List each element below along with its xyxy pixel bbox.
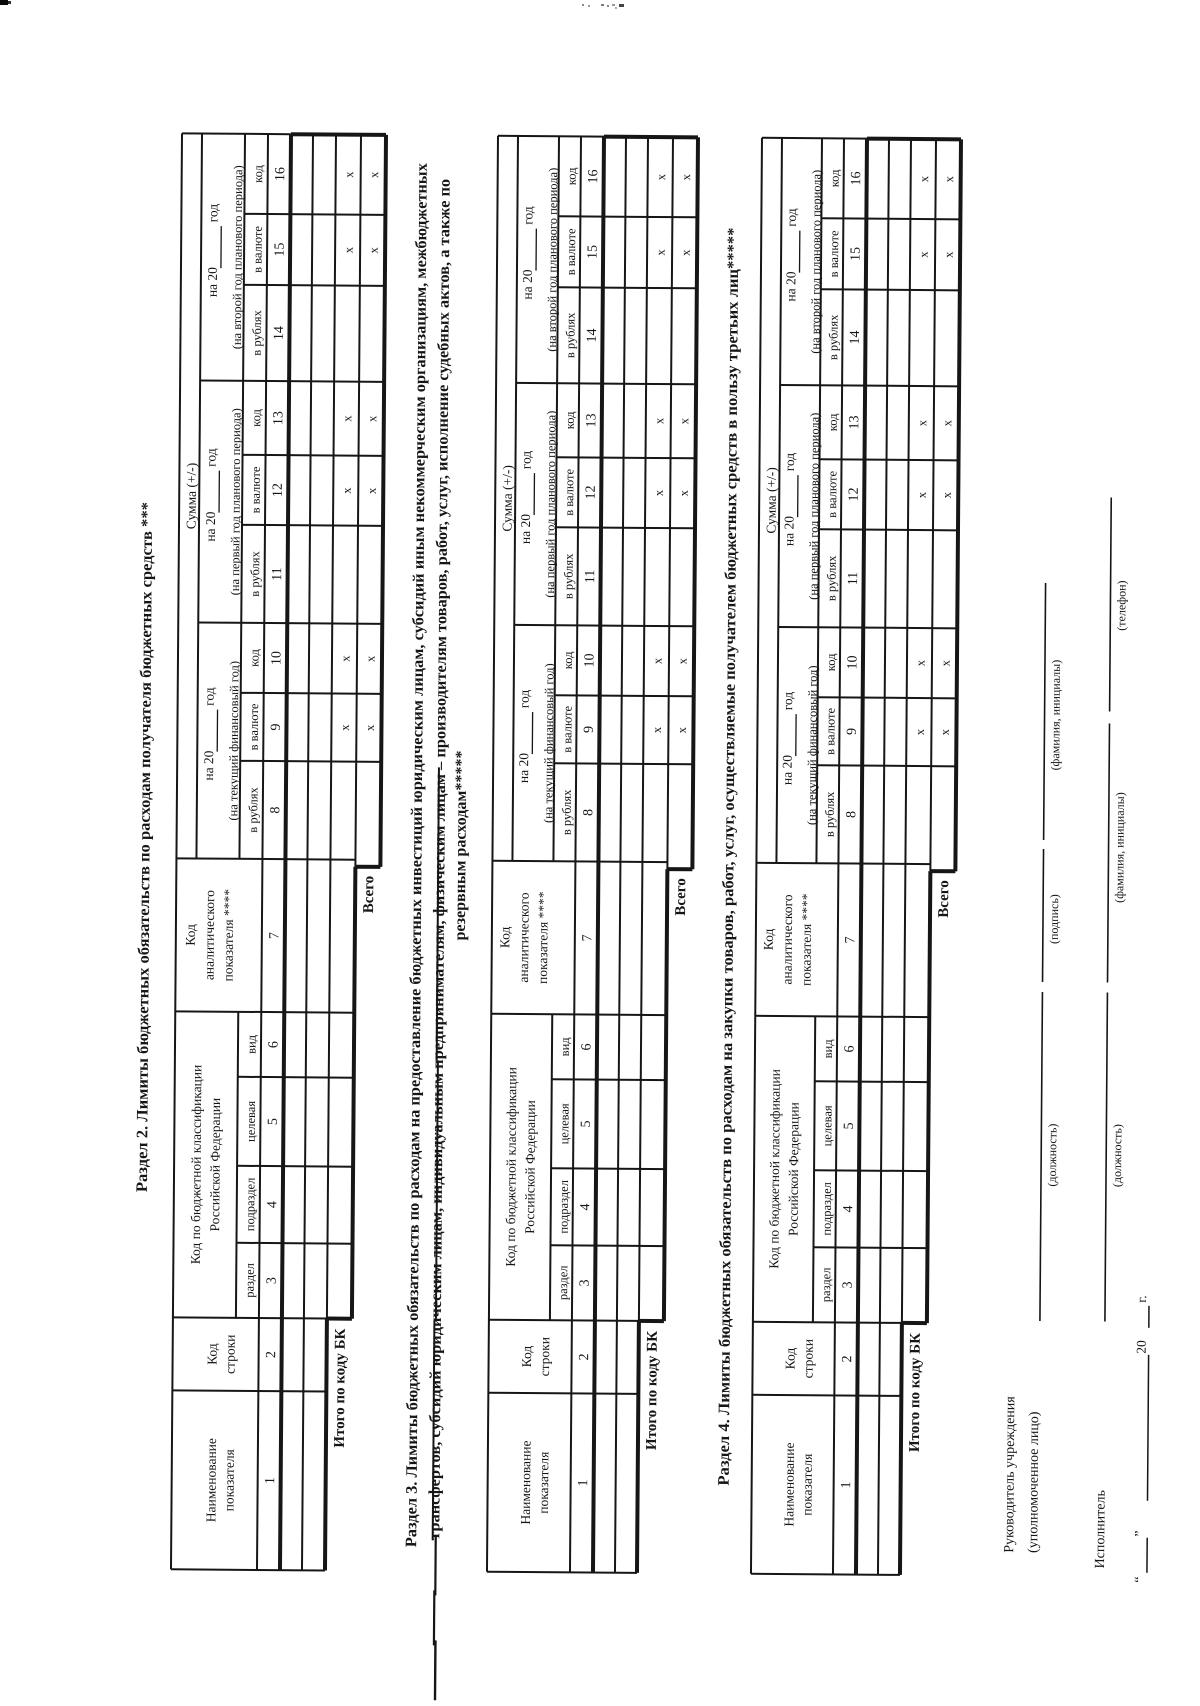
svg-text:х: х	[938, 728, 952, 735]
svg-text:х: х	[915, 419, 929, 426]
svg-text:подраздел: подраздел	[557, 1180, 571, 1234]
svg-text:2: 2	[264, 1351, 279, 1358]
svg-text:13: 13	[584, 413, 599, 427]
svg-text:год: год	[517, 690, 532, 709]
svg-text:х: х	[338, 655, 352, 662]
svg-text:8: 8	[844, 811, 859, 818]
svg-text:Всего: Всего	[936, 880, 952, 918]
svg-text:15: 15	[586, 245, 601, 259]
svg-text:1: 1	[576, 1479, 591, 1486]
svg-text:Код: Код	[519, 1346, 534, 1368]
svg-text:показателя ****: показателя ****	[221, 889, 237, 982]
svg-text:целевая: целевая	[557, 1103, 571, 1144]
svg-text:х: х	[365, 487, 379, 494]
svg-text:(на второй год планового перио: (на второй год планового периода)	[230, 165, 245, 349]
svg-text:5: 5	[266, 1118, 281, 1125]
svg-text:14: 14	[848, 330, 863, 344]
svg-text:на 20: на 20	[201, 750, 216, 780]
svg-text:строки: строки	[222, 1335, 237, 1374]
svg-text:х: х	[917, 251, 931, 258]
svg-text:код: код	[565, 167, 579, 185]
svg-text:(на текущий финансовый год): (на текущий финансовый год)	[805, 665, 820, 825]
svg-text:Итого по коду БК: Итого по коду БК	[332, 1328, 349, 1447]
svg-text:х: х	[367, 171, 381, 178]
svg-text:7: 7	[843, 936, 858, 943]
svg-text:Итого по коду БК: Итого по коду БК	[644, 1331, 661, 1450]
svg-text:Код: Код	[783, 1348, 798, 1370]
svg-text:15: 15	[849, 247, 864, 261]
svg-text:х: х	[342, 246, 356, 253]
svg-text:показателя: показателя	[221, 1449, 236, 1511]
svg-text:х: х	[679, 173, 693, 180]
svg-text:5: 5	[579, 1120, 594, 1127]
svg-text:х: х	[340, 487, 354, 494]
svg-text:вид: вид	[821, 1039, 835, 1059]
svg-text:(на первый год планового перио: (на первый год планового периода)	[228, 408, 243, 595]
svg-text:на 20: на 20	[516, 753, 531, 783]
svg-text:год: год	[203, 448, 218, 467]
svg-text:код: код	[249, 408, 263, 426]
svg-text:(на первый год планового перио: (на первый год планового периода)	[806, 413, 821, 600]
svg-text:Раздел 2. Лимиты бюджетных обя: Раздел 2. Лимиты бюджетных обязательств …	[134, 502, 156, 1192]
svg-text:4: 4	[841, 1205, 856, 1212]
svg-text:строки: строки	[537, 1337, 552, 1376]
svg-text:Российской Федерации: Российской Федерации	[522, 1100, 538, 1234]
svg-text:Наименование: Наименование	[518, 1440, 534, 1524]
svg-text:х: х	[938, 659, 952, 666]
svg-text:Сумма (+/-): Сумма (+/-)	[183, 463, 199, 530]
svg-text:в валюте: в валюте	[823, 707, 837, 754]
svg-text:Раздел 3. Лимиты бюджетных обя: Раздел 3. Лимиты бюджетных обязательств …	[403, 163, 431, 1547]
svg-text:Наименование: Наименование	[781, 1442, 797, 1526]
svg-text:аналитического: аналитического	[779, 894, 795, 984]
svg-text:целевая: целевая	[820, 1105, 834, 1146]
svg-text:в валюте: в валюте	[564, 228, 578, 275]
svg-text:х: х	[652, 489, 666, 496]
svg-text:в рублях: в рублях	[824, 555, 838, 601]
svg-text:целевая: целевая	[244, 1101, 258, 1142]
svg-text:х: х	[677, 489, 691, 496]
svg-text:х: х	[677, 417, 691, 424]
svg-text:(уполномоченное лицо): (уполномоченное лицо)	[1026, 1411, 1042, 1553]
svg-text:10: 10	[582, 653, 597, 667]
svg-text:(фамилия, инициалы): (фамилия, инициалы)	[1112, 792, 1127, 903]
svg-text:год: год	[202, 687, 217, 706]
svg-text:х: х	[367, 246, 381, 253]
svg-text:7: 7	[580, 934, 595, 941]
svg-text:код: код	[563, 411, 577, 429]
svg-text:на 20: на 20	[205, 267, 220, 297]
svg-text:13: 13	[847, 415, 862, 429]
svg-text:код: код	[561, 651, 575, 669]
svg-text:9: 9	[269, 724, 284, 731]
svg-text:Код: Код	[205, 1343, 220, 1365]
svg-text:(на текущий финансовый год): (на текущий финансовый год)	[226, 661, 241, 821]
svg-text:подраздел: подраздел	[243, 1178, 257, 1232]
svg-text:в валюте: в валюте	[825, 470, 839, 517]
svg-text:х: х	[650, 657, 664, 664]
svg-text:в рублях: в рублях	[561, 553, 575, 599]
svg-text:(должность): (должность)	[1110, 1124, 1124, 1187]
svg-text:код: код	[247, 648, 261, 666]
svg-text:Итого по коду БК: Итого по коду БК	[907, 1333, 924, 1452]
svg-text:16: 16	[586, 169, 601, 183]
svg-text:х: х	[942, 175, 956, 182]
svg-text:Всего: Всего	[673, 878, 689, 916]
svg-text:9: 9	[582, 726, 597, 733]
svg-text:на 20: на 20	[203, 511, 218, 541]
svg-text:(на второй год планового перио: (на второй год планового периода)	[808, 170, 823, 354]
svg-text:11: 11	[270, 567, 285, 581]
svg-text:”: ”	[1133, 1530, 1148, 1536]
svg-text:в валюте: в валюте	[827, 230, 841, 277]
svg-text:в валюте: в валюте	[560, 705, 574, 752]
svg-text:16: 16	[849, 171, 864, 185]
svg-text:3: 3	[841, 1281, 856, 1288]
svg-text:10: 10	[269, 651, 284, 665]
svg-text:3: 3	[265, 1277, 280, 1284]
svg-text:х: х	[915, 491, 929, 498]
svg-text:в рублях: в рублях	[823, 791, 837, 837]
svg-text:раздел: раздел	[243, 1263, 257, 1298]
svg-text:год: год	[205, 204, 220, 223]
svg-text:х: х	[942, 251, 956, 258]
svg-text:Код по бюджетной классификации: Код по бюджетной классификации	[188, 1065, 205, 1265]
svg-text:Исполнитель: Исполнитель	[1093, 1490, 1109, 1568]
svg-text:Сумма (+/-): Сумма (+/-)	[499, 465, 515, 532]
svg-text:в рублях: в рублях	[250, 309, 264, 355]
svg-text:х: х	[654, 249, 668, 256]
svg-text:2: 2	[840, 1355, 855, 1362]
svg-text:х: х	[342, 171, 356, 178]
svg-text:Наименование: Наименование	[203, 1438, 219, 1522]
svg-text:Код: Код	[497, 926, 512, 948]
svg-text:Код: Код	[761, 928, 776, 950]
svg-text:показателя: показателя	[799, 1454, 814, 1516]
svg-text:4: 4	[265, 1201, 280, 1208]
svg-text:вид: вид	[244, 1034, 258, 1054]
svg-text:х: х	[679, 249, 693, 256]
svg-text:на 20: на 20	[781, 516, 796, 546]
svg-text:вид: вид	[558, 1037, 572, 1057]
svg-text:код: код	[828, 169, 842, 187]
svg-text:5: 5	[842, 1122, 857, 1129]
svg-text:год: год	[782, 453, 797, 472]
svg-text:показателя: показателя	[536, 1452, 551, 1514]
svg-text:(подпись): (подпись)	[1047, 894, 1061, 944]
svg-text:х: х	[675, 726, 689, 733]
svg-text:х: х	[917, 175, 931, 182]
svg-text:год: год	[780, 692, 795, 711]
svg-text:Код по бюджетной классификации: Код по бюджетной классификации	[766, 1069, 783, 1269]
svg-text:14: 14	[272, 326, 287, 340]
svg-text:в валюте: в валюте	[249, 466, 263, 513]
svg-text:3: 3	[578, 1279, 593, 1286]
svg-text:код: код	[251, 164, 265, 182]
svg-text:16: 16	[273, 167, 288, 181]
svg-text:раздел: раздел	[556, 1265, 570, 1300]
svg-text:Российской Федерации: Российской Федерации	[207, 1098, 223, 1232]
svg-text:х: х	[675, 657, 689, 664]
svg-text:год: год	[520, 206, 535, 225]
svg-text:4: 4	[578, 1203, 593, 1210]
svg-text:х: х	[913, 659, 927, 666]
svg-text:в рублях: в рублях	[826, 314, 840, 360]
svg-text:г.: г.	[1134, 1295, 1149, 1303]
svg-text:Всего: Всего	[361, 876, 377, 914]
svg-text:(на второй год планового перио: (на второй год планового периода)	[545, 168, 560, 352]
svg-text:Код: Код	[183, 924, 198, 946]
svg-text:9: 9	[845, 728, 860, 735]
svg-text:(на текущий финансовый год): (на текущий финансовый год)	[541, 663, 556, 823]
svg-text:на 20: на 20	[518, 514, 533, 544]
svg-text:в валюте: в валюте	[250, 226, 264, 273]
svg-text:подраздел: подраздел	[820, 1182, 834, 1236]
svg-text:“: “	[1133, 1576, 1148, 1582]
svg-text:на 20: на 20	[780, 755, 795, 785]
svg-text:в рублях: в рублях	[560, 789, 574, 835]
svg-text:Руководитель учреждения: Руководитель учреждения	[1002, 1396, 1018, 1553]
svg-text:х: х	[913, 728, 927, 735]
svg-text:2: 2	[577, 1353, 592, 1360]
svg-text:в рублях: в рублях	[246, 786, 260, 832]
svg-text:х: х	[654, 173, 668, 180]
svg-text:1: 1	[263, 1477, 278, 1484]
svg-text:Сумма (+/-): Сумма (+/-)	[763, 467, 779, 534]
svg-text:в валюте: в валюте	[562, 468, 576, 515]
svg-text:12: 12	[584, 485, 599, 499]
svg-text:резервным расходам*****: резервным расходам*****	[452, 750, 470, 940]
svg-text:8: 8	[268, 807, 283, 814]
svg-text:8: 8	[581, 809, 596, 816]
svg-text:год: год	[518, 451, 533, 470]
svg-text:х: х	[363, 655, 377, 662]
svg-text:на 20: на 20	[783, 271, 798, 301]
svg-text:Раздел 4. Лимиты бюджетных обя: Раздел 4. Лимиты бюджетных обязательств …	[716, 228, 743, 1486]
svg-text:аналитического: аналитического	[516, 892, 532, 982]
svg-text:(телефон): (телефон)	[1114, 580, 1128, 630]
svg-text:в валюте: в валюте	[247, 703, 261, 750]
svg-text:х: х	[940, 491, 954, 498]
svg-text:6: 6	[842, 1045, 857, 1052]
svg-text:строки: строки	[800, 1339, 815, 1378]
svg-text:показателя ****: показателя ****	[798, 893, 814, 986]
svg-text:раздел: раздел	[819, 1267, 833, 1302]
svg-text:х: х	[650, 726, 664, 733]
svg-text:код: код	[824, 653, 838, 671]
svg-text:12: 12	[271, 483, 286, 497]
svg-text:трансфертов, субсидий юридичес: трансфертов, субсидий юридическим лицам,…	[426, 179, 453, 1540]
svg-text:Российской Федерации: Российской Федерации	[786, 1102, 802, 1236]
svg-text:7: 7	[267, 932, 282, 939]
svg-text:х: х	[340, 415, 354, 422]
svg-text:показателя ****: показателя ****	[535, 891, 551, 984]
svg-text:год: год	[784, 208, 799, 227]
svg-text:на 20: на 20	[520, 269, 535, 299]
svg-text:11: 11	[583, 570, 598, 584]
svg-text:(на первый год планового перио: (на первый год планового периода)	[543, 411, 558, 598]
svg-text:20: 20	[1134, 1340, 1149, 1354]
svg-text:(должность): (должность)	[1045, 1124, 1059, 1187]
svg-text:х: х	[338, 724, 352, 731]
svg-text:Код по бюджетной классификации: Код по бюджетной классификации	[503, 1067, 520, 1267]
svg-text:13: 13	[271, 411, 286, 425]
svg-text:12: 12	[847, 487, 862, 501]
svg-text:в рублях: в рублях	[563, 312, 577, 358]
svg-text:х: х	[365, 415, 379, 422]
svg-text:(фамилия, инициалы): (фамилия, инициалы)	[1048, 660, 1063, 771]
svg-text:код: код	[826, 413, 840, 431]
svg-text:11: 11	[846, 572, 861, 586]
svg-text:15: 15	[273, 243, 288, 257]
svg-text:аналитического: аналитического	[202, 890, 218, 980]
svg-text:10: 10	[845, 655, 860, 669]
svg-text:х: х	[652, 417, 666, 424]
svg-text:1: 1	[839, 1481, 854, 1488]
svg-text:х: х	[940, 419, 954, 426]
svg-text:6: 6	[266, 1041, 281, 1048]
svg-text:в рублях: в рублях	[248, 550, 262, 596]
svg-text:6: 6	[579, 1043, 594, 1050]
svg-text:14: 14	[585, 328, 600, 342]
svg-text:х: х	[363, 724, 377, 731]
